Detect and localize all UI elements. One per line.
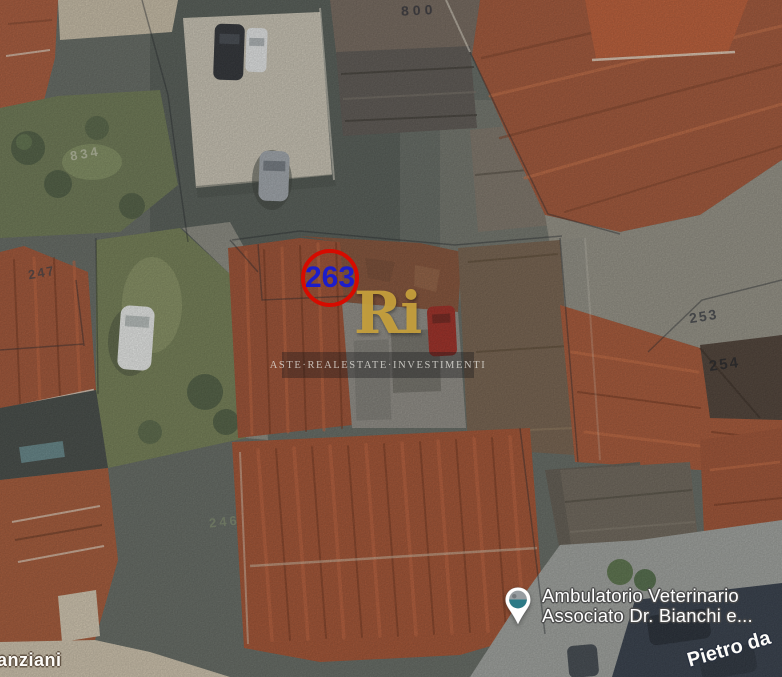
watermark-caption: ASTE·REALESTATE·INVESTIMENTI bbox=[270, 360, 487, 371]
street-label-anziani: anziani bbox=[0, 650, 62, 671]
poi-name-line1: Ambulatorio Veterinario bbox=[542, 586, 753, 606]
watermark-logo: Ri bbox=[354, 284, 420, 342]
poi-name-line2: Associato Dr. Bianchi e... bbox=[542, 606, 753, 626]
watermark-caption-band: ASTE·REALESTATE·INVESTIMENTI bbox=[282, 352, 474, 378]
map-pin-icon[interactable] bbox=[504, 585, 532, 627]
lot-marker-circle: 263 bbox=[301, 249, 359, 307]
satellite-map-viewport[interactable]: 800 834 247 253 254 246 263 Ri ASTE·REAL… bbox=[0, 0, 782, 677]
lot-marker-number: 263 bbox=[305, 261, 355, 295]
parcel-number-246: 246 bbox=[208, 512, 240, 530]
parcel-number-800: 800 bbox=[401, 1, 437, 19]
poi-label[interactable]: Ambulatorio Veterinario Associato Dr. Bi… bbox=[542, 586, 753, 626]
poi-ambulatorio-veterinario[interactable]: Ambulatorio Veterinario Associato Dr. Bi… bbox=[504, 585, 753, 627]
